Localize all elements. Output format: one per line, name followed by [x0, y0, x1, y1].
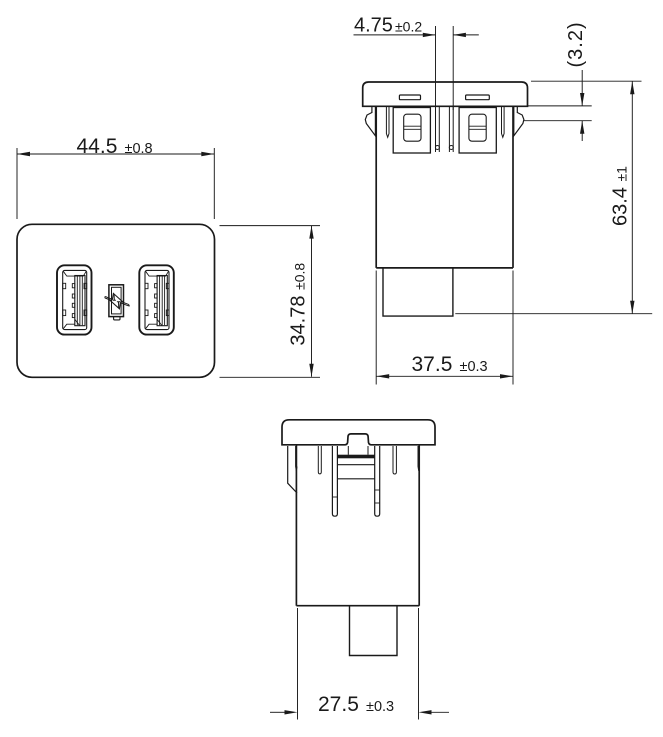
svg-text:±0.3: ±0.3 [460, 359, 488, 375]
svg-text:34.78 ±0.8: 34.78 ±0.8 [288, 263, 310, 346]
svg-text:44.5: 44.5 [77, 135, 118, 158]
svg-text:(3.2): (3.2) [565, 21, 587, 67]
svg-text:±0.8: ±0.8 [125, 141, 153, 157]
svg-text:4.75: 4.75 [354, 15, 393, 37]
svg-text:63.4 ±1: 63.4 ±1 [610, 166, 632, 226]
svg-text:27.5: 27.5 [318, 693, 359, 716]
svg-text:37.5: 37.5 [412, 353, 453, 376]
svg-text:±0.3: ±0.3 [366, 699, 394, 715]
svg-text:±0.2: ±0.2 [395, 19, 422, 35]
